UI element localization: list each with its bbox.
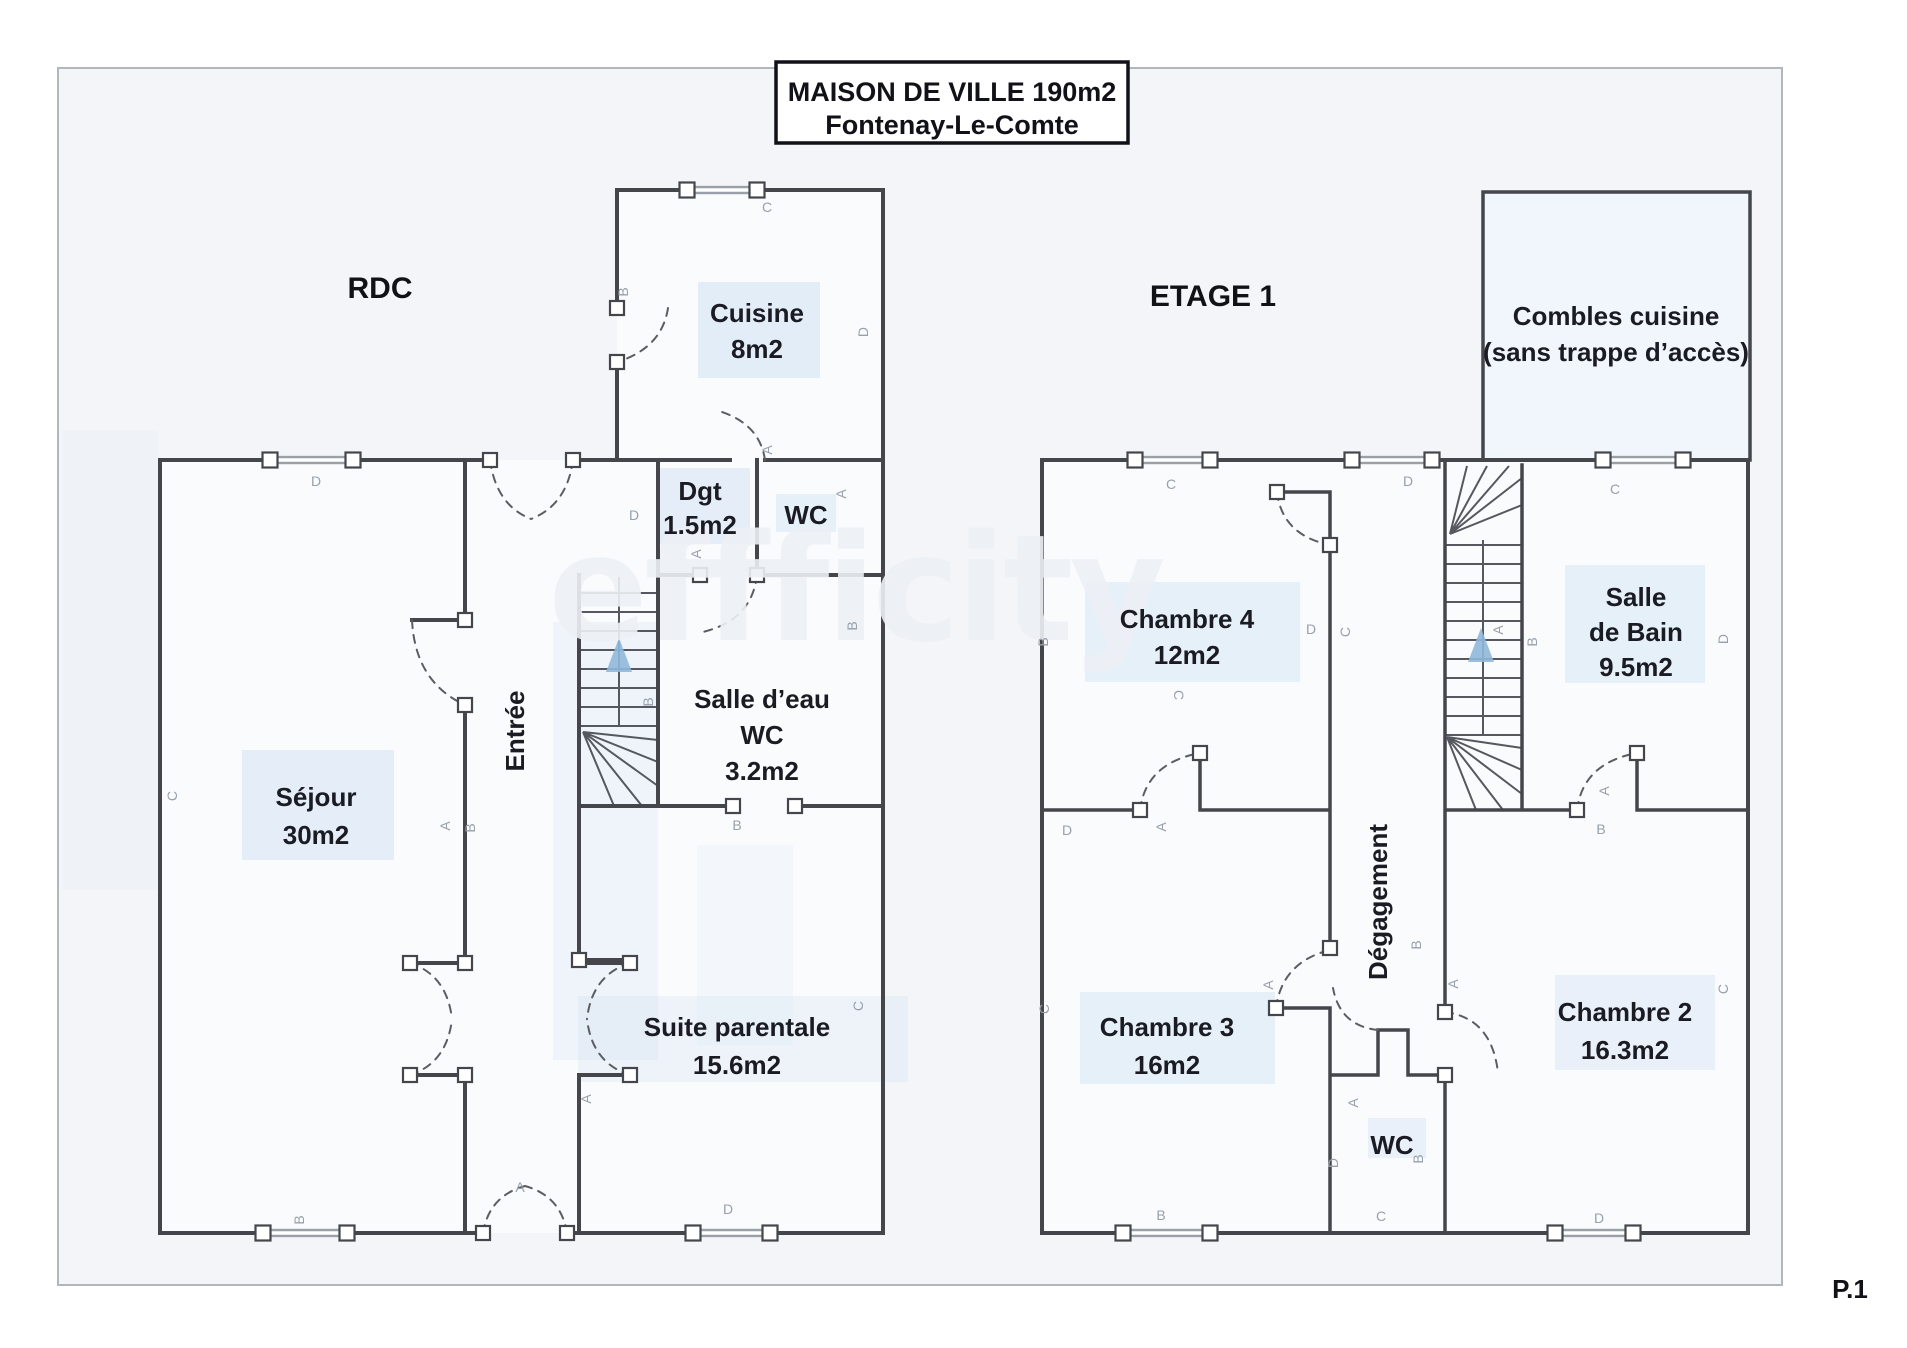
window-post [1116,1226,1131,1241]
wall-letter: B [1156,1207,1165,1223]
room-label-cuisine: 8m2 [731,334,783,364]
room-label-degagement: Dégagement [1363,824,1393,980]
window-post [680,183,695,198]
window-post [1626,1226,1641,1241]
wall-letter: A [1490,625,1506,635]
door-post [788,799,802,813]
wall-letter: D [855,327,871,337]
window-post [1425,453,1440,468]
wall-letter: B [1035,637,1051,646]
room-label-dgt: 1.5m2 [663,510,737,540]
door-post [1270,485,1284,499]
door-post [1269,1001,1283,1015]
wall-letter: C [1036,1004,1052,1014]
wall-letter: D [1594,1210,1604,1226]
door-post [560,1226,574,1240]
floor-plan-page: effficity Cuisine8m2Dgt1.5m2WCSalle d’ea… [0,0,1907,1348]
door-post [458,698,472,712]
wall-letter: C [164,791,180,801]
room-label-chambre4: 12m2 [1154,640,1221,670]
room-label-salle-deau: Salle d’eau [694,684,830,714]
door-post [572,953,586,967]
door-post [403,956,417,970]
room-label-combles: Combles cuisine [1513,301,1720,331]
wall-letter: D [1403,473,1413,489]
room-label-cuisine: Cuisine [710,298,804,328]
wall-letter: C [1715,984,1731,994]
wall-letter: A [1260,980,1276,990]
window-post [763,1226,778,1241]
door-post [726,799,740,813]
wall-letter: C [1166,476,1176,492]
door-post [1133,803,1147,817]
room-label-combles: (sans trappe d’accès) [1483,337,1749,367]
wall-letter: B [1410,1154,1426,1163]
floor-label-etage1: ETAGE 1 [1150,280,1276,313]
door-post [1323,538,1337,552]
wall-letter: B [1596,821,1605,837]
room-label-suite-parentale: 15.6m2 [693,1050,781,1080]
window-post [1345,453,1360,468]
room-label-sejour: Séjour [276,782,357,812]
wall-letter: A [1153,822,1169,832]
wall-letter: B [640,697,656,706]
door-post [403,1068,417,1082]
room-label-wc-rdc: WC [784,500,828,530]
window-post [256,1226,271,1241]
room-label-wc-etage1: WC [1370,1130,1414,1160]
window-post [750,183,765,198]
watermark-text: effficity [548,503,1163,675]
wall-letter: D [311,473,321,489]
wall-letter: A [759,445,775,455]
wall-letter: C [1610,481,1620,497]
door-post [623,956,637,970]
window-post [346,453,361,468]
room-label-salle-de-bain: 9.5m2 [1599,652,1673,682]
wall-letter: B [1408,940,1424,949]
wall-letter: A [1596,786,1612,796]
window-post [1203,453,1218,468]
door-post [476,1226,490,1240]
window-post [1548,1226,1563,1241]
window-post [1128,453,1143,468]
title-line2: Fontenay-Le-Comte [825,110,1079,140]
window-post [1203,1226,1218,1241]
wall-letter: A [578,1094,594,1104]
wall-letter: C [850,1001,866,1011]
wall-letter: D [723,1201,733,1217]
room-label-chambre3: 16m2 [1134,1050,1201,1080]
wall-letter: C [1376,1208,1386,1224]
door-post [1570,803,1584,817]
wall-letter: B [844,621,860,630]
page-number: P.1 [1832,1274,1868,1304]
wall-letter: A [833,489,849,499]
window-post [1676,453,1691,468]
door-post [458,1068,472,1082]
door-post [623,1068,637,1082]
room-label-salle-deau: 3.2m2 [725,756,799,786]
door-post [458,613,472,627]
room-label-entree: Entrée [500,691,530,772]
wall-letter: D [629,507,639,523]
window-post [1596,453,1611,468]
floor-plan-image: effficity Cuisine8m2Dgt1.5m2WCSalle d’ea… [0,0,1907,1348]
wall-letter: C [762,199,772,215]
window-post [263,453,278,468]
wall-letter: C [1337,627,1353,637]
door-post [483,453,497,467]
wall-letter: B [462,823,478,832]
wall-letter: D [1062,822,1072,838]
room-label-salle-de-bain: Salle [1606,582,1667,612]
wall-letter: D [1715,634,1731,644]
window-post [340,1226,355,1241]
door-post [458,956,472,970]
wall-letter: B [291,1215,307,1224]
title-box: MAISON DE VILLE 190m2 Fontenay-Le-Comte [776,62,1128,143]
wall-letter: A [1345,1098,1361,1108]
door-post [610,355,624,369]
wall-letter: B [1524,637,1540,646]
wall-letter: B [732,817,741,833]
door-post [566,453,580,467]
title-line1: MAISON DE VILLE 190m2 [788,77,1117,107]
room-label-sejour: 30m2 [283,820,350,850]
wall-letter: D [1325,1158,1341,1168]
wall-letter: A [515,1179,525,1195]
door-post [1323,941,1337,955]
door-post [1438,1068,1452,1082]
window-post [686,1226,701,1241]
wall-letter: C [1171,690,1187,700]
wall-letter: A [1445,979,1461,989]
room-label-salle-deau: WC [740,720,784,750]
room-label-salle-de-bain: de Bain [1589,617,1683,647]
door-post [1193,746,1207,760]
wall-letter: D [1306,621,1316,637]
door-post [1438,1005,1452,1019]
door-post [1630,746,1644,760]
room-label-dgt: Dgt [678,476,722,506]
room-label-chambre2: 16.3m2 [1581,1035,1669,1065]
wall-letter: B [615,287,631,296]
wall-letter: A [437,821,453,831]
room-label-chambre2: Chambre 2 [1558,997,1692,1027]
room-label-chambre3: Chambre 3 [1100,1012,1234,1042]
room-label-chambre4: Chambre 4 [1120,604,1255,634]
room-label-suite-parentale: Suite parentale [644,1012,830,1042]
floor-label-rdc: RDC [348,272,413,305]
wall-letter: A [688,549,704,559]
door-post [610,301,624,315]
